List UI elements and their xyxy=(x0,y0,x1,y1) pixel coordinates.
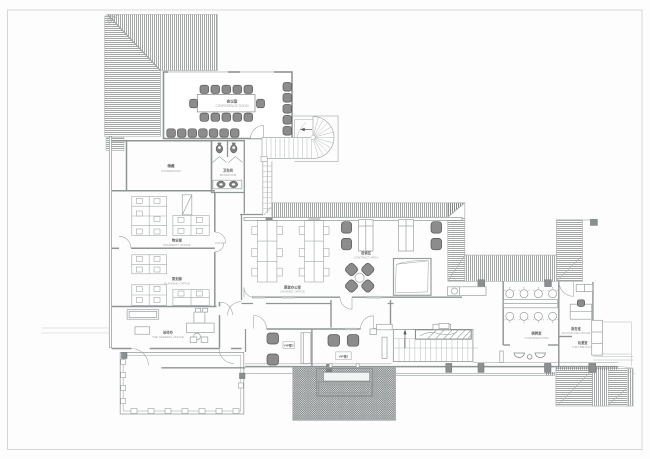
svg-text:渠道办公室: 渠道办公室 xyxy=(283,284,302,289)
svg-text:CONVENE ROOM: CONVENE ROOM xyxy=(524,336,549,340)
svg-text:THE GENERAL OFFICE: THE GENERAL OFFICE xyxy=(152,335,184,339)
svg-text:STOREROOM: STOREROOM xyxy=(161,169,181,173)
svg-text:BATHROOM: BATHROOM xyxy=(220,173,237,177)
svg-text:机要室: 机要室 xyxy=(577,340,588,345)
svg-text:总经办: 总经办 xyxy=(163,330,174,335)
svg-text:PROPERTY OFFICE: PROPERTY OFFICE xyxy=(163,243,190,247)
svg-text:会议室: 会议室 xyxy=(226,98,238,103)
svg-text:财务室: 财务室 xyxy=(570,326,581,331)
svg-text:ACCOUNTING OFFICE: ACCOUNTING OFFICE xyxy=(562,331,591,335)
svg-text:CONTRACT AREA: CONTRACT AREA xyxy=(354,255,379,259)
svg-text:洽谈区: 洽谈区 xyxy=(361,250,372,255)
svg-text:物业部: 物业部 xyxy=(172,238,183,243)
svg-text:CHANNEL OFFICE: CHANNEL OFFICE xyxy=(280,290,305,294)
svg-text:储藏: 储藏 xyxy=(166,163,175,168)
svg-text:棋牌室: 棋牌室 xyxy=(530,331,542,336)
svg-text:策划部: 策划部 xyxy=(171,276,183,281)
svg-text:VIP室1: VIP室1 xyxy=(339,353,349,358)
svg-text:卫生间: 卫生间 xyxy=(223,168,234,173)
svg-text:CONFERENCE ROOM: CONFERENCE ROOM xyxy=(215,104,248,108)
svg-text:PLANNING OFFICE: PLANNING OFFICE xyxy=(164,281,190,285)
svg-text:VIP室2: VIP室2 xyxy=(284,343,294,348)
svg-text:THE TIME ROOM: THE TIME ROOM xyxy=(572,345,594,349)
